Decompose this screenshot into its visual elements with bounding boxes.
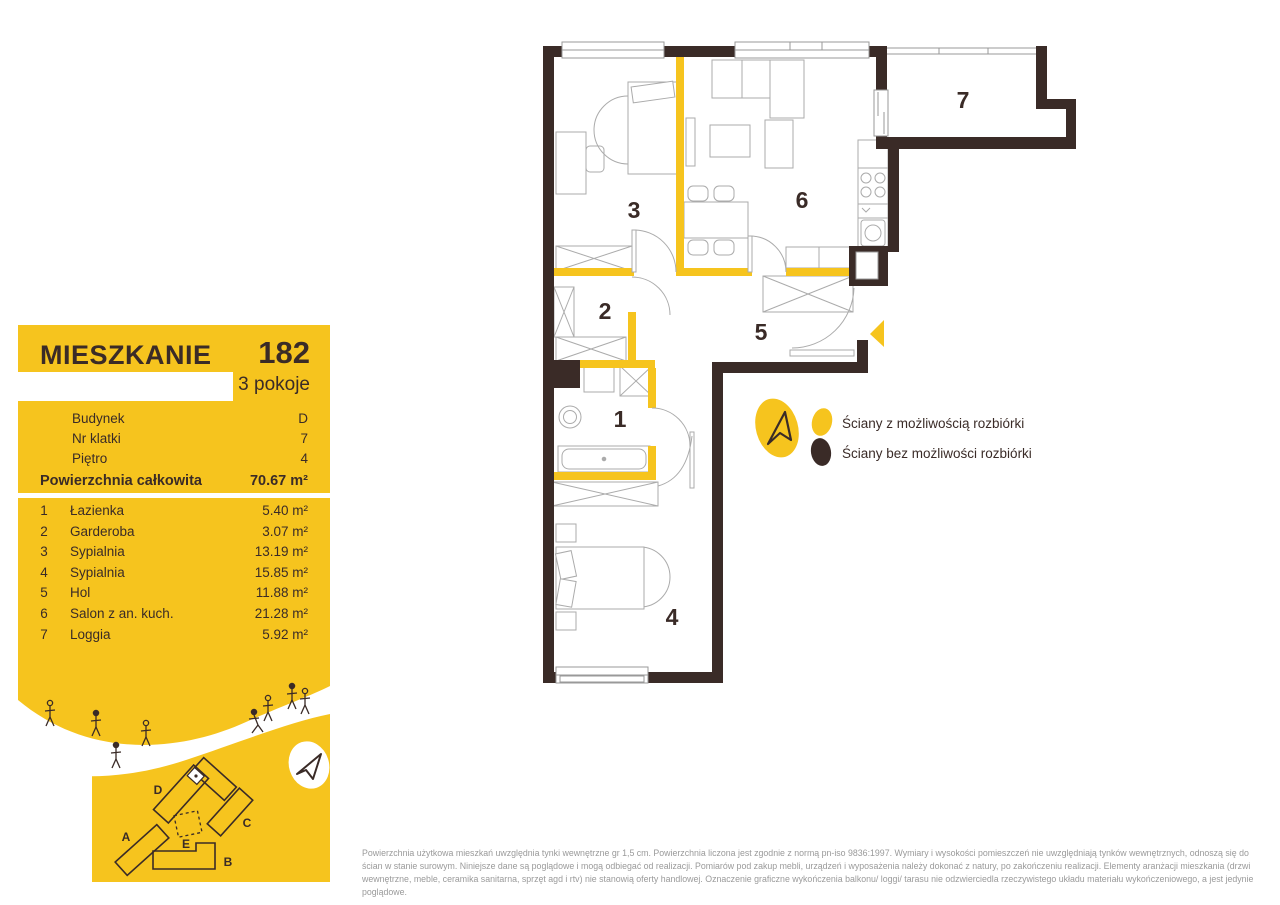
legend-dot-dark — [809, 436, 834, 467]
room-no: 1 — [18, 501, 70, 522]
room-number-2: 2 — [599, 298, 612, 324]
card-header: MIESZKANIE 182 — [40, 335, 310, 371]
room-area: 15.85 m² — [255, 563, 308, 584]
room-name: Łazienka — [70, 501, 262, 522]
total-area-value: 70.67 m² — [250, 473, 308, 489]
legend: Ściany z możliwością rozbiórki Ściany be… — [842, 408, 1032, 468]
room-area: 13.19 m² — [255, 542, 308, 563]
room-list-item: 5 Hol 11.88 m² — [18, 583, 330, 604]
room-area: 5.40 m² — [262, 501, 308, 522]
info-label: Budynek — [72, 409, 125, 429]
room-list-item: 4 Sypialnia 15.85 m² — [18, 563, 330, 584]
room-list-item: 6 Salon z an. kuch. 21.28 m² — [18, 604, 330, 625]
info-rows: Budynek D Nr klatki 7 Piętro 4 — [18, 409, 330, 469]
total-area-label: Powierzchnia całkowita — [40, 473, 202, 489]
room-number-1: 1 — [614, 406, 627, 432]
room-list-item: 3 Sypialnia 13.19 m² — [18, 542, 330, 563]
room-number-6: 6 — [796, 187, 809, 213]
room-name: Sypialnia — [70, 563, 255, 584]
legend-non-demolishable: Ściany bez możliwości rozbiórki — [842, 438, 1032, 468]
room-list: 1 Łazienka 5.40 m² 2 Garderoba 3.07 m² 3… — [18, 501, 330, 645]
legend-demolishable: Ściany z możliwością rozbiórki — [842, 408, 1032, 438]
room-area: 5.92 m² — [262, 625, 308, 646]
shaft-opening — [856, 252, 878, 279]
info-label: Piętro — [72, 449, 107, 469]
room-no: 4 — [18, 563, 70, 584]
room-number-4: 4 — [666, 604, 679, 630]
divider — [18, 493, 330, 498]
room-area: 11.88 m² — [256, 583, 308, 604]
info-label: Nr klatki — [72, 429, 121, 449]
legend-dot-yellow — [809, 406, 835, 438]
room-area: 21.28 m² — [255, 604, 308, 625]
disclaimer-text: Powierzchnia użytkowa mieszkań uwzględni… — [362, 847, 1267, 899]
room-no: 7 — [18, 625, 70, 646]
entrance-arrow — [870, 320, 884, 347]
rooms-count: 3 pokoje — [238, 374, 310, 396]
room-list-item: 2 Garderoba 3.07 m² — [18, 522, 330, 543]
room-list-item: 1 Łazienka 5.40 m² — [18, 501, 330, 522]
demolishable-walls — [554, 57, 852, 480]
apartment-number: 182 — [258, 335, 310, 371]
logo-band — [18, 372, 233, 401]
page: A B C D E — [0, 0, 1280, 905]
room-name: Salon z an. kuch. — [70, 604, 255, 625]
room-no: 2 — [18, 522, 70, 543]
room-area: 3.07 m² — [262, 522, 308, 543]
apartment-card: MIESZKANIE 182 3 pokoje Budynek D Nr kla… — [18, 325, 330, 882]
info-row-pietro: Piętro 4 — [18, 449, 330, 469]
info-row-budynek: Budynek D — [18, 409, 330, 429]
info-value: 7 — [300, 429, 308, 449]
room-number-5: 5 — [755, 319, 768, 345]
total-area-row: Powierzchnia całkowita 70.67 m² — [18, 473, 330, 489]
info-value: D — [298, 409, 308, 429]
room-name: Garderoba — [70, 522, 262, 543]
card-title: MIESZKANIE — [40, 340, 212, 371]
info-value: 4 — [300, 449, 308, 469]
room-no: 3 — [18, 542, 70, 563]
room-number-7: 7 — [957, 87, 970, 113]
room-no: 6 — [18, 604, 70, 625]
legend-graphics — [749, 393, 836, 467]
room-list-item: 7 Loggia 5.92 m² — [18, 625, 330, 646]
room-no: 5 — [18, 583, 70, 604]
room-number-3: 3 — [628, 197, 641, 223]
room-name: Sypialnia — [70, 542, 255, 563]
room-name: Hol — [70, 583, 256, 604]
room-name: Loggia — [70, 625, 262, 646]
info-row-klatka: Nr klatki 7 — [18, 429, 330, 449]
